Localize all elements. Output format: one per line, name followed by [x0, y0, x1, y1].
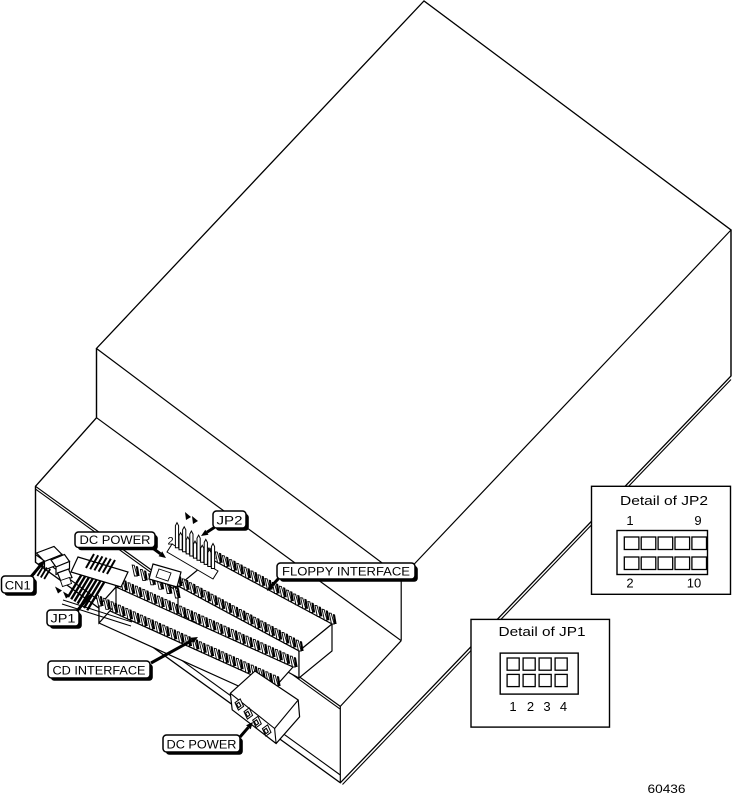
svg-text:Detail of JP2: Detail of JP2 [620, 493, 708, 508]
svg-text:CD INTERFACE: CD INTERFACE [53, 666, 146, 678]
svg-text:60436: 60436 [648, 782, 686, 796]
svg-text:3: 3 [543, 699, 550, 714]
svg-text:Detail of JP1: Detail of JP1 [499, 624, 586, 639]
svg-text:JP2: JP2 [217, 516, 243, 528]
svg-text:2: 2 [167, 536, 173, 548]
svg-text:CN1: CN1 [5, 581, 31, 593]
svg-text:10: 10 [687, 576, 701, 591]
svg-text:FLOPPY INTERFACE: FLOPPY INTERFACE [282, 567, 410, 579]
svg-text:JP1: JP1 [51, 614, 76, 626]
svg-text:1: 1 [626, 513, 633, 528]
svg-text:DC POWER: DC POWER [80, 535, 151, 547]
svg-text:9: 9 [694, 513, 701, 528]
svg-text:2: 2 [527, 699, 534, 714]
svg-text:4: 4 [560, 699, 567, 714]
svg-text:2: 2 [626, 576, 633, 591]
svg-text:DC POWER: DC POWER [167, 740, 237, 752]
svg-text:1: 1 [509, 699, 516, 714]
